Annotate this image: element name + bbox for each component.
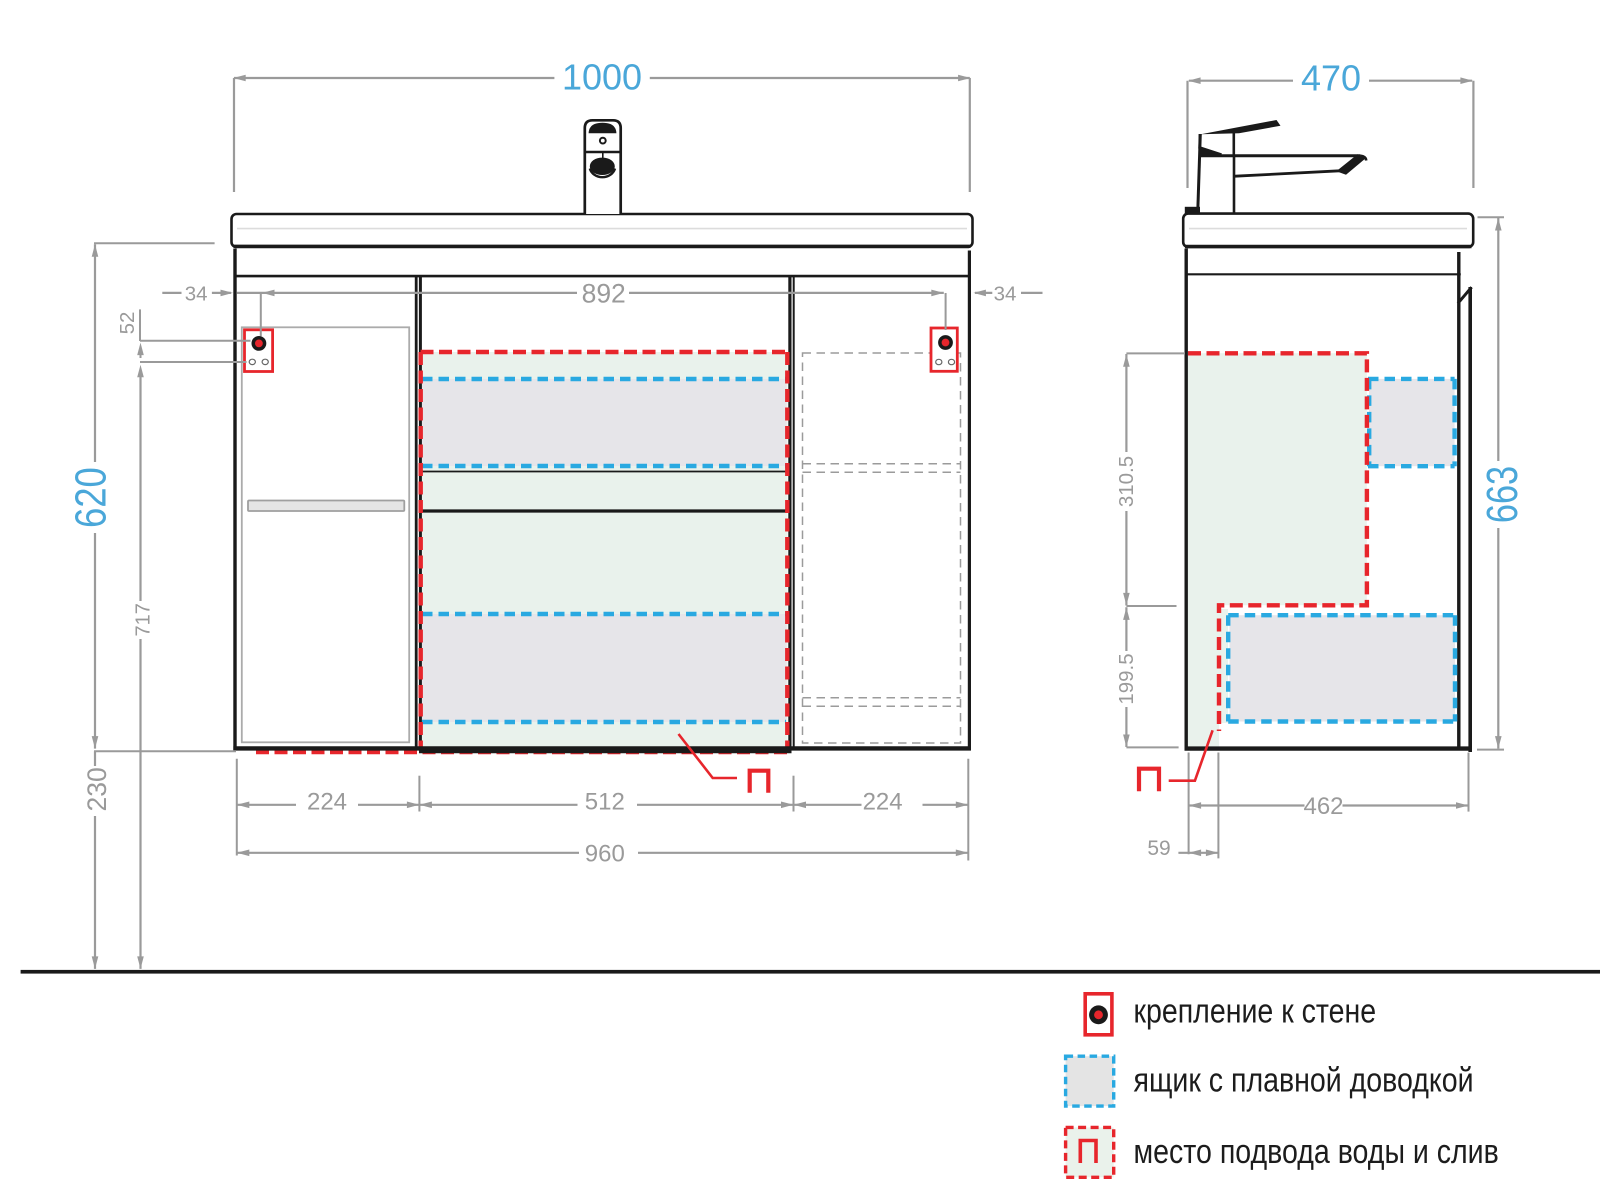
svg-text:663: 663	[1478, 466, 1527, 523]
svg-text:224: 224	[863, 789, 903, 816]
svg-text:620: 620	[65, 467, 115, 528]
svg-text:место подвода воды и слив: место подвода воды и слив	[1134, 1133, 1499, 1171]
svg-text:52: 52	[116, 312, 139, 335]
svg-text:крепление к стене: крепление к стене	[1134, 992, 1377, 1030]
svg-text:224: 224	[307, 789, 347, 816]
svg-text:892: 892	[582, 279, 626, 309]
svg-text:230: 230	[82, 767, 112, 811]
svg-text:462: 462	[1303, 793, 1343, 820]
svg-text:1000: 1000	[562, 56, 642, 97]
svg-text:59: 59	[1147, 837, 1170, 860]
svg-text:199.5: 199.5	[1115, 653, 1138, 704]
svg-text:960: 960	[585, 840, 625, 867]
svg-text:34: 34	[994, 282, 1017, 305]
svg-text:512: 512	[585, 789, 625, 816]
svg-text:34: 34	[185, 282, 208, 305]
svg-text:ящик с плавной доводкой: ящик с плавной доводкой	[1134, 1061, 1474, 1099]
svg-text:470: 470	[1301, 57, 1361, 98]
svg-text:310.5: 310.5	[1115, 456, 1138, 507]
svg-text:717: 717	[132, 603, 154, 636]
